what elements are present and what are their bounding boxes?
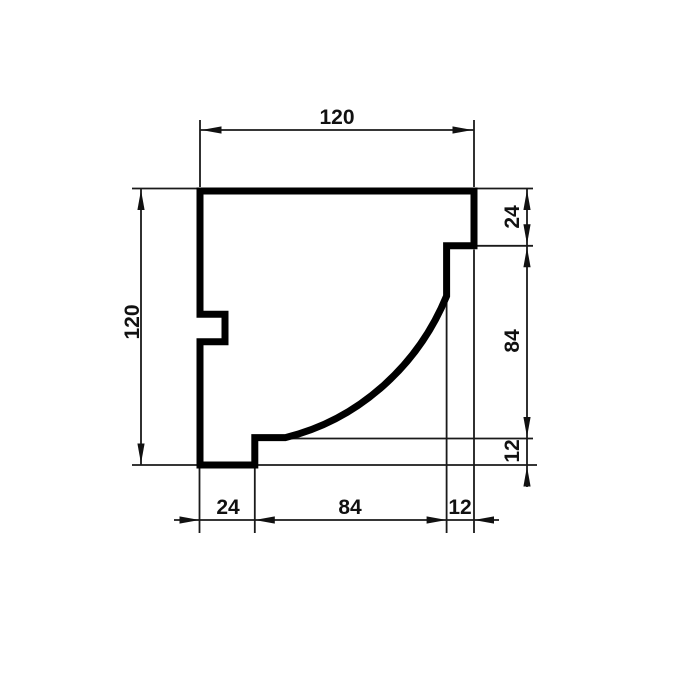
dim-label-left-height: 120 bbox=[121, 304, 144, 339]
arrowhead bbox=[202, 126, 222, 133]
arrowhead bbox=[523, 417, 530, 437]
dim-label-top-width: 120 bbox=[319, 106, 354, 129]
arrowhead bbox=[523, 247, 530, 267]
arrowhead bbox=[453, 126, 473, 133]
dim-label-right-bottom: 12 bbox=[501, 439, 524, 462]
arrowhead bbox=[523, 224, 530, 244]
arrowhead bbox=[427, 516, 447, 523]
arrowhead bbox=[523, 190, 530, 210]
arrowhead bbox=[180, 516, 200, 523]
profile-outline bbox=[200, 191, 474, 465]
arrowhead bbox=[137, 444, 144, 464]
profile-dimension-drawing: 120 120 24 84 12 24 84 12 bbox=[0, 0, 686, 686]
drawing-canvas: 120 120 24 84 12 24 84 12 bbox=[0, 0, 686, 686]
arrowhead bbox=[255, 516, 275, 523]
arrowhead bbox=[137, 190, 144, 210]
dim-label-bottom-right: 12 bbox=[448, 496, 471, 519]
arrowhead bbox=[474, 516, 494, 523]
arrowhead bbox=[523, 467, 530, 487]
dim-label-right-top: 24 bbox=[501, 205, 524, 229]
dim-label-bottom-mid: 84 bbox=[338, 496, 362, 519]
dim-label-bottom-left: 24 bbox=[216, 496, 240, 519]
dim-label-right-mid: 84 bbox=[501, 329, 524, 353]
